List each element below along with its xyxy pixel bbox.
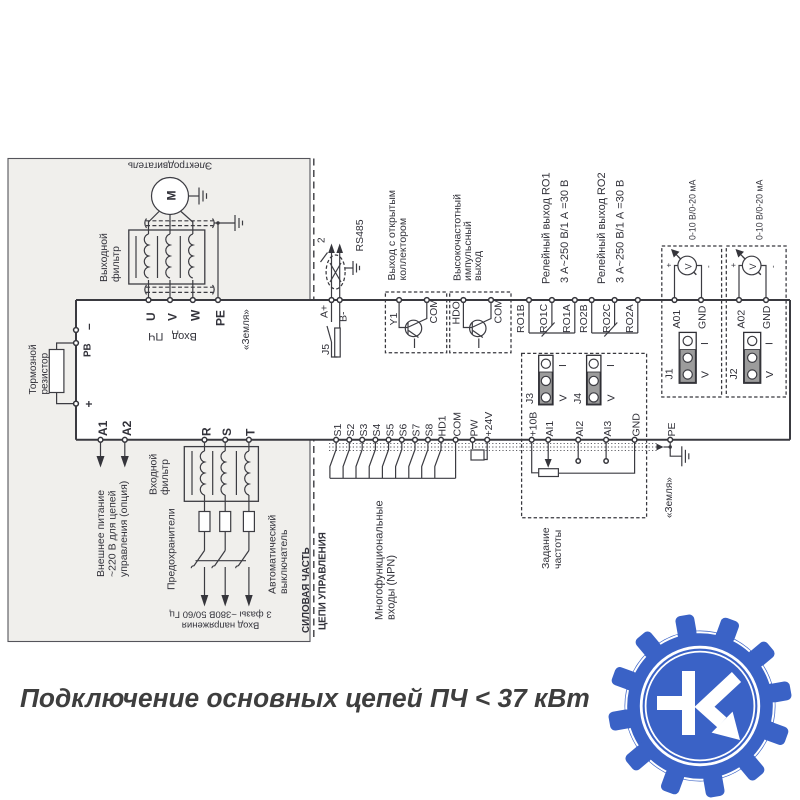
svg-text:COM: COM xyxy=(428,299,440,324)
svg-text:PW: PW xyxy=(468,419,480,436)
svg-text:3 А~250 В/1 А =30 В: 3 А~250 В/1 А =30 В xyxy=(615,180,627,283)
svg-text:J4: J4 xyxy=(572,393,584,404)
svg-text:RO2B: RO2B xyxy=(578,304,590,333)
svg-text:V: V xyxy=(700,371,712,378)
svg-text:фильтр: фильтр xyxy=(110,246,122,282)
svg-text:Электродвигатель: Электродвигатель xyxy=(128,160,212,171)
svg-text:AI2: AI2 xyxy=(574,421,586,437)
svg-text:Входной: Входной xyxy=(148,454,160,495)
svg-text:V: V xyxy=(558,394,570,401)
svg-text:Вход ПЧ: Вход ПЧ xyxy=(148,330,197,342)
svg-text:-: - xyxy=(704,265,713,268)
svg-text:T: T xyxy=(244,428,258,436)
svg-text:RO1B: RO1B xyxy=(515,304,527,333)
svg-text:I: I xyxy=(605,364,617,367)
svg-text:S7: S7 xyxy=(411,423,423,436)
svg-text:I: I xyxy=(764,342,776,345)
svg-text:S6: S6 xyxy=(398,423,410,436)
svg-text:COM: COM xyxy=(451,412,463,437)
svg-text:GND: GND xyxy=(630,413,642,437)
svg-text:AI3: AI3 xyxy=(602,421,614,437)
svg-text:Автоматический: Автоматический xyxy=(267,515,279,594)
svg-text:Вход напряжения: Вход напряжения xyxy=(182,620,259,631)
svg-text:A02: A02 xyxy=(736,310,748,329)
svg-text:S5: S5 xyxy=(384,423,396,436)
svg-text:+: + xyxy=(729,263,738,268)
svg-text:S2: S2 xyxy=(345,423,357,436)
svg-text:управления (опция): управления (опция) xyxy=(118,481,130,577)
svg-text:Релейный выход RO2: Релейный выход RO2 xyxy=(596,172,608,284)
svg-text:фильтр: фильтр xyxy=(159,459,171,495)
svg-text:V: V xyxy=(684,263,694,269)
svg-text:«Земля»: «Земля» xyxy=(664,477,675,518)
svg-text:V: V xyxy=(748,263,758,269)
svg-text:«Земля»: «Земля» xyxy=(241,309,252,350)
svg-text:GND: GND xyxy=(697,305,709,329)
svg-text:HD1: HD1 xyxy=(437,415,449,436)
svg-text:S8: S8 xyxy=(424,423,436,436)
svg-text:Тормозной: Тормозной xyxy=(28,344,39,394)
svg-text:+24V: +24V xyxy=(483,412,495,437)
svg-text:+10В: +10В xyxy=(527,412,539,437)
svg-text:AI1: AI1 xyxy=(544,421,556,437)
svg-text:2: 2 xyxy=(317,237,328,243)
svg-text:~220 В для цепей: ~220 В для цепей xyxy=(107,490,119,577)
svg-text:M: M xyxy=(165,191,179,201)
svg-text:–: – xyxy=(82,323,96,330)
svg-text:J2: J2 xyxy=(728,368,740,379)
svg-text:R: R xyxy=(200,427,214,436)
svg-text:Релейный выход RO1: Релейный выход RO1 xyxy=(541,172,553,284)
svg-text:+: + xyxy=(82,400,96,407)
svg-text:V: V xyxy=(764,371,776,378)
svg-text:V: V xyxy=(606,394,618,401)
svg-text:Задание: Задание xyxy=(540,527,552,569)
svg-text:I: I xyxy=(699,342,711,345)
svg-text:S4: S4 xyxy=(371,423,383,436)
svg-text:СИЛОВАЯ ЧАСТЬ: СИЛОВАЯ ЧАСТЬ xyxy=(301,547,312,633)
svg-text:S: S xyxy=(220,428,234,436)
svg-text:выход: выход xyxy=(472,251,484,281)
svg-text:PE: PE xyxy=(214,310,228,326)
svg-text:RS485: RS485 xyxy=(354,219,366,251)
svg-text:Выходной: Выходной xyxy=(98,233,110,282)
svg-text:HDO: HDO xyxy=(451,301,463,324)
svg-text:Y1: Y1 xyxy=(388,312,400,325)
svg-text:COM: COM xyxy=(493,299,505,324)
svg-text:Многофункциональные: Многофункциональные xyxy=(374,500,386,620)
svg-text:Внешнее питание: Внешнее питание xyxy=(95,490,107,577)
svg-text:J5: J5 xyxy=(320,344,332,355)
svg-text:A01: A01 xyxy=(671,310,683,329)
svg-text:GND: GND xyxy=(761,305,773,329)
svg-text:0-10 В/0-20 мА: 0-10 В/0-20 мА xyxy=(755,180,765,240)
svg-text:PB: PB xyxy=(83,343,94,357)
svg-text:I: I xyxy=(557,364,569,367)
svg-text:J3: J3 xyxy=(524,393,536,404)
svg-text:3 фазы ~380В 50/60 Гц: 3 фазы ~380В 50/60 Гц xyxy=(169,609,272,620)
svg-text:Подключение основных цепей ПЧ: Подключение основных цепей ПЧ < 37 кВт xyxy=(20,683,590,713)
svg-text:выключатель: выключатель xyxy=(278,529,290,594)
svg-text:3 А~250 В/1 А =30 В: 3 А~250 В/1 А =30 В xyxy=(559,180,571,283)
svg-text:ЦЕПИ УПРАВЛЕНИЯ: ЦЕПИ УПРАВЛЕНИЯ xyxy=(318,532,329,630)
svg-text:U: U xyxy=(144,312,158,321)
svg-text:RO1A: RO1A xyxy=(561,304,573,333)
svg-text:частоты: частоты xyxy=(552,530,564,569)
svg-text:A1: A1 xyxy=(96,420,110,436)
svg-text:RO2A: RO2A xyxy=(624,304,636,333)
svg-text:J1: J1 xyxy=(664,368,676,379)
svg-text:W: W xyxy=(189,309,203,321)
svg-text:0-10 В/0-20 мА: 0-10 В/0-20 мА xyxy=(688,180,698,240)
svg-text:Предохранители: Предохранители xyxy=(166,508,178,590)
svg-text:S1: S1 xyxy=(332,423,344,436)
svg-text:+: + xyxy=(665,263,674,268)
svg-text:входы (NPN): входы (NPN) xyxy=(386,555,398,620)
svg-text:S3: S3 xyxy=(358,423,370,436)
svg-text:PE: PE xyxy=(666,422,678,436)
svg-text:A+: A+ xyxy=(319,305,331,318)
svg-text:A2: A2 xyxy=(120,420,134,436)
svg-text:V: V xyxy=(166,313,180,321)
svg-text:-: - xyxy=(769,265,778,268)
svg-text:коллектором: коллектором xyxy=(397,218,409,281)
